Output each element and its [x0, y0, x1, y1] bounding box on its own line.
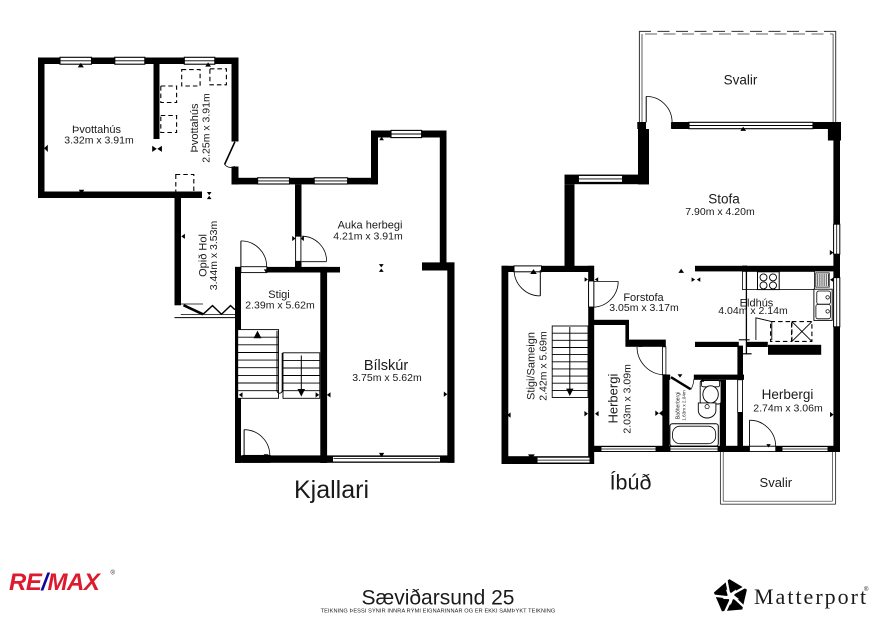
svg-text:Íbúð: Íbúð: [610, 470, 652, 495]
svg-text:®: ®: [864, 586, 869, 593]
svg-text:Svalir: Svalir: [724, 73, 758, 88]
svg-text:®: ®: [111, 570, 116, 577]
svg-text:1.63m x 2.04m: 1.63m x 2.04m: [682, 390, 687, 421]
svg-text:Baðherbergi: Baðherbergi: [675, 392, 682, 419]
svg-text:Þvottahús: Þvottahús: [189, 103, 201, 152]
svg-text:Herbergi: Herbergi: [762, 387, 814, 402]
svg-text:Herbergi: Herbergi: [606, 374, 621, 424]
svg-text:3.75m x 5.62m: 3.75m x 5.62m: [352, 372, 422, 384]
svg-text:Svalir: Svalir: [760, 475, 793, 490]
svg-text:Stigi/Sameign: Stigi/Sameign: [526, 332, 538, 400]
svg-text:TEIKNING ÞESSI SÝNIR INNRA RÝM: TEIKNING ÞESSI SÝNIR INNRA RÝMI EIGNARIN…: [321, 608, 556, 615]
svg-text:3.05m x 3.17m: 3.05m x 3.17m: [609, 302, 679, 314]
svg-text:2.74m x 3.06m: 2.74m x 3.06m: [753, 403, 823, 415]
svg-text:2.42m x 5.69m: 2.42m x 5.69m: [538, 331, 550, 401]
svg-text:3.44m x 3.53m: 3.44m x 3.53m: [208, 221, 220, 291]
svg-text:2.39m x 5.62m: 2.39m x 5.62m: [245, 300, 315, 312]
svg-text:2.03m x 3.09m: 2.03m x 3.09m: [621, 364, 633, 434]
svg-text:Sæviðarsund 25: Sæviðarsund 25: [362, 587, 515, 610]
svg-text:7.90m x 4.20m: 7.90m x 4.20m: [685, 206, 755, 218]
svg-text:Stofa: Stofa: [708, 192, 740, 207]
svg-text:RE/MAX: RE/MAX: [9, 569, 102, 596]
svg-text:2.25m x 3.91m: 2.25m x 3.91m: [201, 93, 213, 163]
svg-text:3.32m x 3.91m: 3.32m x 3.91m: [64, 135, 134, 147]
svg-text:4.04m x 2.14m: 4.04m x 2.14m: [718, 305, 788, 317]
svg-text:4.21m x 3.91m: 4.21m x 3.91m: [333, 231, 403, 243]
svg-text:Kjallari: Kjallari: [294, 476, 369, 504]
svg-text:Matterport: Matterport: [754, 584, 868, 609]
